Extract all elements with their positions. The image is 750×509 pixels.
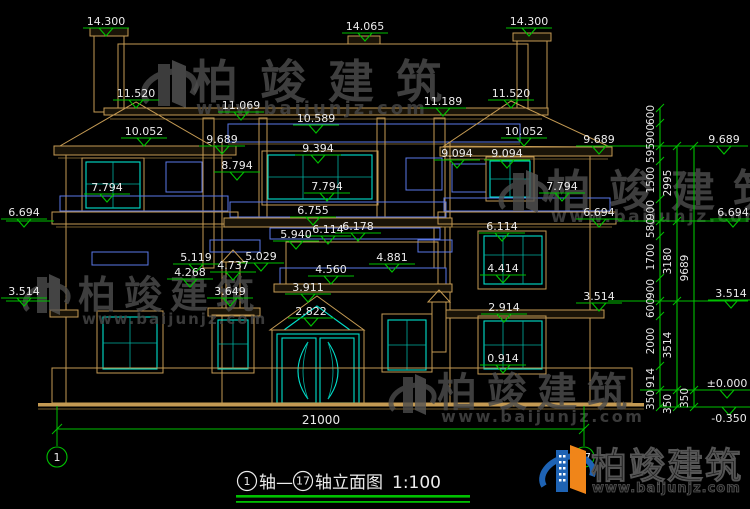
watermark-url: www.baijunjz.com: [82, 310, 267, 328]
elevation-value: -0.350: [711, 412, 746, 425]
elevation-value: 11.069: [222, 99, 261, 112]
dimension-value: 580: [645, 218, 657, 238]
elevation-value: 4.560: [315, 263, 347, 276]
title-axis-1: 1: [244, 475, 251, 488]
elevation-value: 4.268: [174, 266, 206, 279]
elevation-value: 14.300: [510, 15, 549, 28]
dimension-value: 9689: [679, 255, 691, 282]
elevation-value: 9.094: [441, 147, 473, 160]
elevation-value: 9.094: [491, 147, 523, 160]
title-scale: 1:100: [392, 473, 441, 493]
dimension-value: 1700: [645, 244, 657, 271]
dimension-value: 2000: [645, 328, 657, 355]
dimension-value: 1500: [645, 167, 657, 194]
elevation-value: 11.520: [492, 87, 531, 100]
dimension-value: 350: [645, 390, 657, 410]
title-underline-thick: [236, 495, 470, 498]
dimension-value: 350: [679, 388, 691, 408]
elevation-value: 6.694: [717, 206, 749, 219]
dimension-value: 900: [645, 279, 657, 299]
elevation-value: 3.514: [8, 285, 40, 298]
elevation-value: 4.737: [217, 259, 249, 272]
dimension-value: 595: [645, 143, 657, 163]
elevation-value: 6.178: [342, 220, 374, 233]
overall-dimension: 21000: [302, 413, 340, 427]
watermark-url: www.baijunjz.com: [441, 407, 644, 426]
elevation-value: 11.189: [424, 95, 463, 108]
dimension-value: 900: [645, 200, 657, 220]
elevation-value: 6.755: [297, 204, 329, 217]
elevation-value: 7.794: [91, 181, 123, 194]
dimension-value: 2995: [662, 170, 674, 197]
dimension-value: 914: [645, 368, 657, 388]
elevation-value: 2.822: [295, 305, 327, 318]
dimension-value: 600: [645, 298, 657, 318]
elevation-value: 5.119: [180, 251, 212, 264]
dimension-value: 900: [645, 124, 657, 144]
elevation-value: 10.589: [297, 112, 336, 125]
dimension-value: 600: [645, 105, 657, 125]
elevation-value: 11.520: [117, 87, 156, 100]
elevation-value: 9.394: [302, 142, 334, 155]
elevation-value: 4.414: [487, 262, 519, 275]
elevation-value: 3.649: [214, 285, 246, 298]
elevation-value: 9.689: [206, 133, 238, 146]
elevation-value: 9.689: [708, 133, 740, 146]
elevation-value: 5.029: [245, 250, 277, 263]
elevation-value: 8.794: [221, 159, 253, 172]
axis-number-left: 1: [54, 451, 61, 464]
elevation-value: 14.300: [87, 15, 126, 28]
elevation-value: 3.514: [583, 290, 615, 303]
elevation-value: 7.794: [546, 180, 578, 193]
title-axis-17: 17: [296, 475, 310, 488]
elevation-value: 3.911: [292, 281, 324, 294]
elevation-value: 6.114: [486, 220, 518, 233]
elevation-value: 2.914: [488, 301, 520, 314]
title-name: 轴立面图: [315, 473, 383, 493]
elevation-value: 7.794: [311, 180, 343, 193]
elevation-value: 5.940: [280, 228, 312, 241]
cad-elevation-sheet: 柏竣建筑 www.baijunjz.com 柏竣建筑 www.baijunjz.…: [0, 0, 750, 509]
brand-url: www.baijunjz.com: [592, 481, 741, 496]
elevation-value: 10.052: [505, 125, 544, 138]
title-axis-join: 轴—: [259, 473, 293, 493]
elevation-value: ±0.000: [707, 377, 748, 390]
elevation-value: 6.694: [583, 206, 615, 219]
elevation-value: 6.114: [312, 223, 344, 236]
elevation-value: 0.914: [487, 352, 519, 365]
elevation-value: 9.689: [583, 133, 615, 146]
elevation-value: 10.052: [125, 125, 164, 138]
elevation-value: 6.694: [8, 206, 40, 219]
elevation-value: 14.065: [346, 20, 385, 33]
dimension-value: 3180: [662, 248, 674, 275]
brand-logo: 柏竣建筑 www.baijunjz.com: [542, 445, 743, 496]
dimension-value: 3514: [662, 331, 674, 358]
title-underline-thin: [236, 501, 470, 503]
dimension-value: 350: [662, 394, 674, 414]
elevation-value: 3.514: [715, 287, 747, 300]
elevation-value: 4.881: [376, 251, 408, 264]
